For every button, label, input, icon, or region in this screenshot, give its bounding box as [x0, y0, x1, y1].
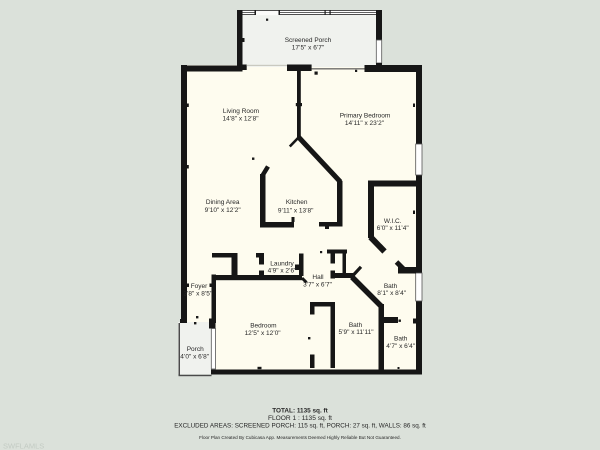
svg-text:W.I.C.: W.I.C. [384, 218, 402, 225]
svg-text:14’8" x 12’8": 14’8" x 12’8" [222, 116, 259, 123]
svg-text:8’1" x 8’4": 8’1" x 8’4" [377, 290, 407, 297]
svg-text:9’11" x 13’8": 9’11" x 13’8" [278, 208, 314, 215]
svg-text:14’11" x 23’2": 14’11" x 23’2" [345, 120, 385, 127]
svg-text:Porch: Porch [187, 346, 204, 353]
svg-text:9’10" x 12’2": 9’10" x 12’2" [205, 207, 242, 214]
svg-text:Hall: Hall [312, 274, 324, 281]
svg-text:Primary Bedroom: Primary Bedroom [340, 113, 391, 120]
svg-text:EXCLUDED AREAS: SCREENED PORCH: EXCLUDED AREAS: SCREENED PORCH: 115 sq. … [174, 423, 426, 430]
svg-text:Living Room: Living Room [223, 108, 259, 115]
svg-text:FLOOR 1 : 1135 sq. ft: FLOOR 1 : 1135 sq. ft [268, 415, 332, 422]
svg-text:6’0" x 11’4": 6’0" x 11’4" [377, 225, 410, 232]
svg-text:SWFLAMLS: SWFLAMLS [3, 442, 44, 450]
svg-text:Bath: Bath [394, 336, 408, 343]
svg-text:Floor Plan Created By Cubicasa: Floor Plan Created By Cubicasa App. Meas… [199, 435, 401, 440]
svg-text:TOTAL: 1135 sq. ft: TOTAL: 1135 sq. ft [272, 408, 328, 415]
svg-text:Screened Porch: Screened Porch [285, 37, 332, 44]
svg-text:Foyer: Foyer [191, 283, 208, 290]
svg-text:Kitchen: Kitchen [286, 199, 308, 206]
svg-text:17’5" x 6’7": 17’5" x 6’7" [292, 45, 325, 52]
svg-text:4’7" x 6’4": 4’7" x 6’4" [386, 343, 416, 350]
svg-text:Bedroom: Bedroom [250, 323, 276, 330]
svg-text:5’9" x 11’11": 5’9" x 11’11" [338, 329, 374, 336]
svg-text:4’0" x 6’8": 4’0" x 6’8" [180, 353, 210, 360]
svg-text:3’7" x 6’7": 3’7" x 6’7" [303, 282, 333, 289]
svg-text:3’8" x 8’5": 3’8" x 8’5" [183, 291, 213, 298]
svg-text:Dining Area: Dining Area [206, 199, 240, 206]
svg-text:4’9" x 2’6": 4’9" x 2’6" [268, 267, 298, 274]
svg-text:Laundry: Laundry [270, 260, 294, 267]
svg-text:12’5" x 12’0": 12’5" x 12’0" [245, 330, 282, 337]
svg-text:Bath: Bath [349, 322, 363, 329]
